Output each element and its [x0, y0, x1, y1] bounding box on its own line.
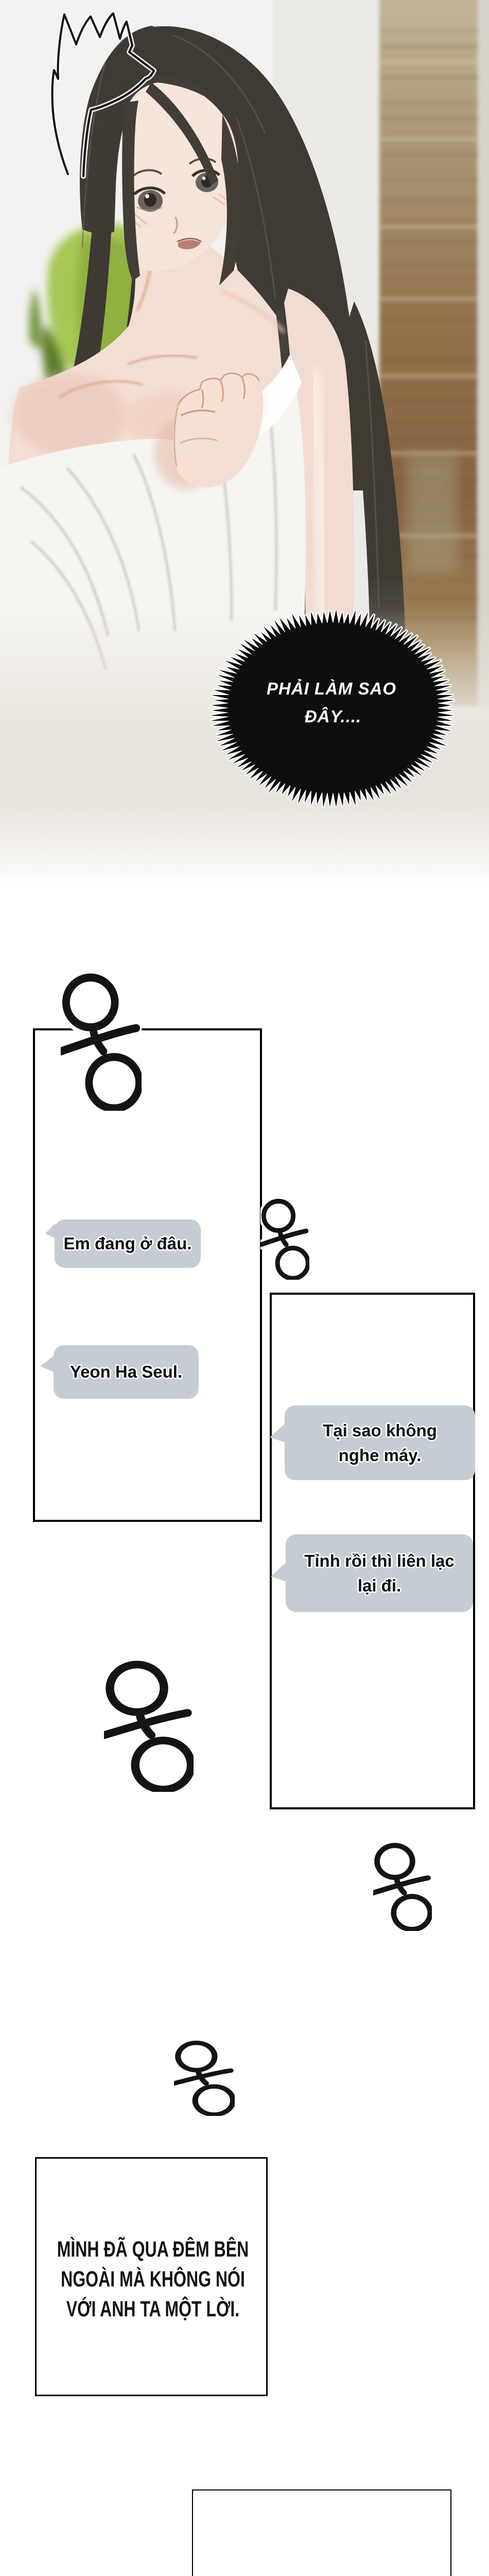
svg-text:PHẢI LÀM SAO: PHẢI LÀM SAO [267, 679, 396, 698]
svg-text:ĐÂY....: ĐÂY.... [305, 707, 361, 726]
